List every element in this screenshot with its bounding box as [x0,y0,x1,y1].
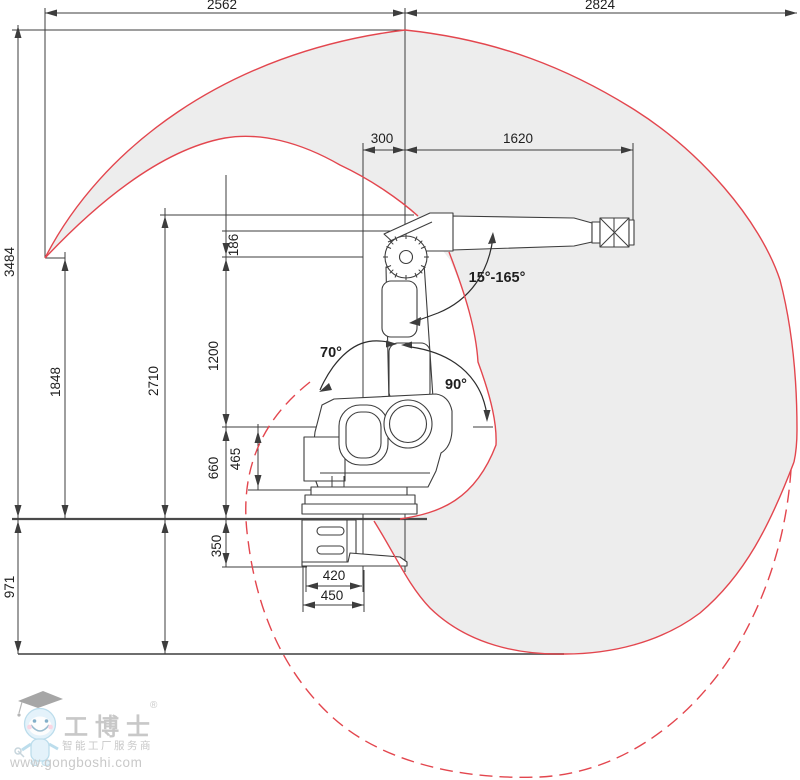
elbow-joint-circle [383,234,429,280]
robot-base-plates [302,487,417,514]
watermark-brand: 工博士 [64,714,157,741]
dim-top-left: 2562 [207,0,237,12]
watermark-tagline: 智能工厂服务商 [62,739,153,752]
dim-arm-offset: 300 [371,131,394,146]
diagram-canvas: 2562 2824 300 1620 420 450 3484 1848 271… [0,0,800,780]
dim-base-outer: 450 [321,588,344,603]
dim-top-right: 2824 [585,0,616,12]
dim-height-mid: 2710 [146,366,161,396]
robot-working-range-diagram: 2562 2824 300 1620 420 450 3484 1848 271… [0,0,800,780]
dim-wrist-drop: 186 [226,234,241,257]
dim-shoulder-height: 660 [206,457,221,480]
dim-riser-height: 350 [209,535,224,558]
watermark-url: www.gongboshi.com [9,755,142,770]
dim-height-total: 3484 [2,246,17,277]
angle-wrist-range: 15°-165° [469,270,526,286]
dim-upper-arm: 1620 [503,131,533,146]
angle-front-tilt: 90° [445,377,467,393]
robot-lower-arm [382,263,433,412]
watermark: 工博士 ® 智能工厂服务商 www.gongboshi.com [9,691,158,770]
angle-rear-tilt: 70° [320,345,342,361]
robot-base-housing [304,394,452,487]
dim-base-height: 465 [228,448,243,471]
dim-lower-arm: 1200 [206,341,221,371]
dim-height-cusp: 1848 [48,367,63,397]
dim-base-inner: 420 [323,568,346,583]
dim-below-floor: 971 [2,576,17,599]
watermark-registered-icon: ® [150,700,158,711]
